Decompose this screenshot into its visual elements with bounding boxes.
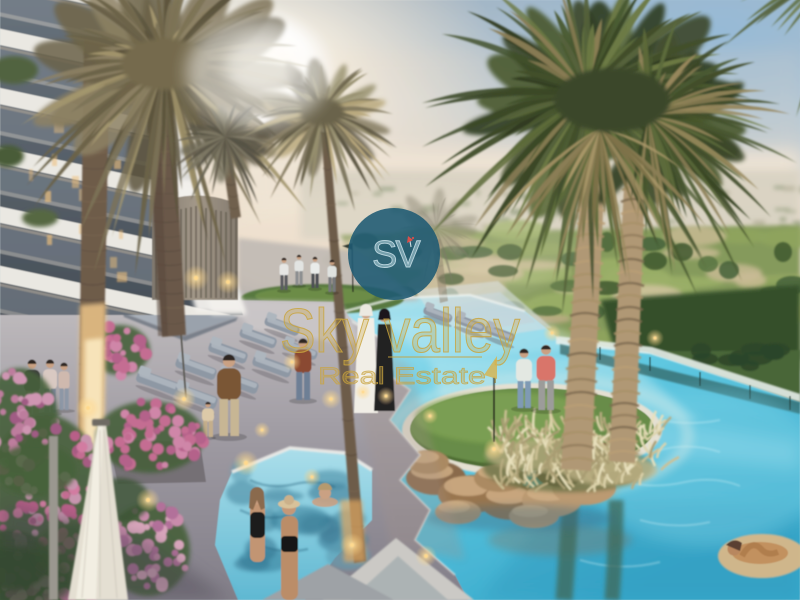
svg-text:Real Estate: Real Estate — [318, 363, 486, 390]
svg-text:SV: SV — [372, 234, 421, 276]
svg-text:Sky valley: Sky valley — [280, 297, 520, 366]
